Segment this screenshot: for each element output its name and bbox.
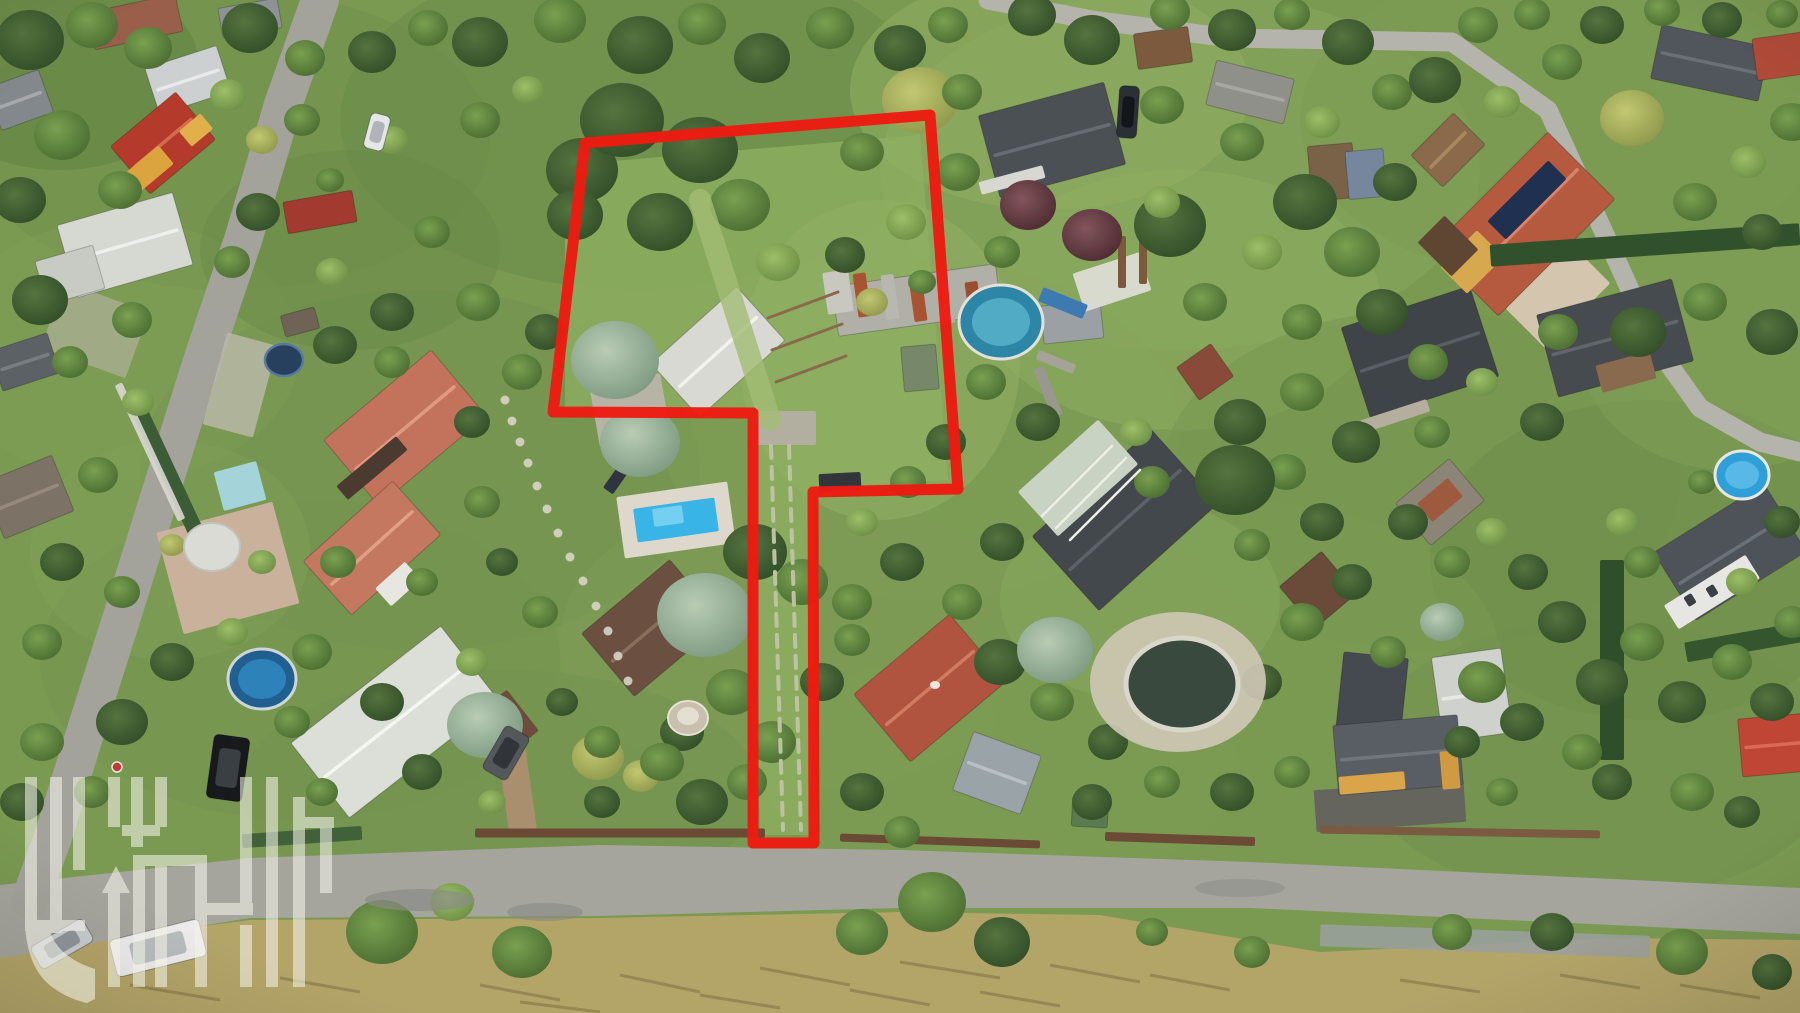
watermark-bar <box>320 828 332 893</box>
watermark-bar <box>240 777 252 903</box>
watermark-bar <box>266 777 278 987</box>
watermark-bar <box>155 777 167 827</box>
watermark-bar <box>240 925 252 987</box>
watermark-bar <box>108 891 120 987</box>
watermark-bar <box>131 777 143 847</box>
watermark-bar <box>207 903 253 915</box>
watermark-bar <box>293 817 334 828</box>
watermark-bar <box>155 866 167 987</box>
watermark-bar <box>133 855 145 987</box>
watermark-bar <box>108 777 120 827</box>
scene-svg <box>0 0 1800 1013</box>
aerial-photo <box>0 0 1800 1013</box>
watermark-bar <box>133 855 207 866</box>
watermark-bar <box>25 777 37 923</box>
watermark-bar <box>122 825 160 836</box>
watermark-bar <box>50 777 62 933</box>
watermark-bar <box>195 866 207 987</box>
watermark-bar <box>73 777 85 870</box>
